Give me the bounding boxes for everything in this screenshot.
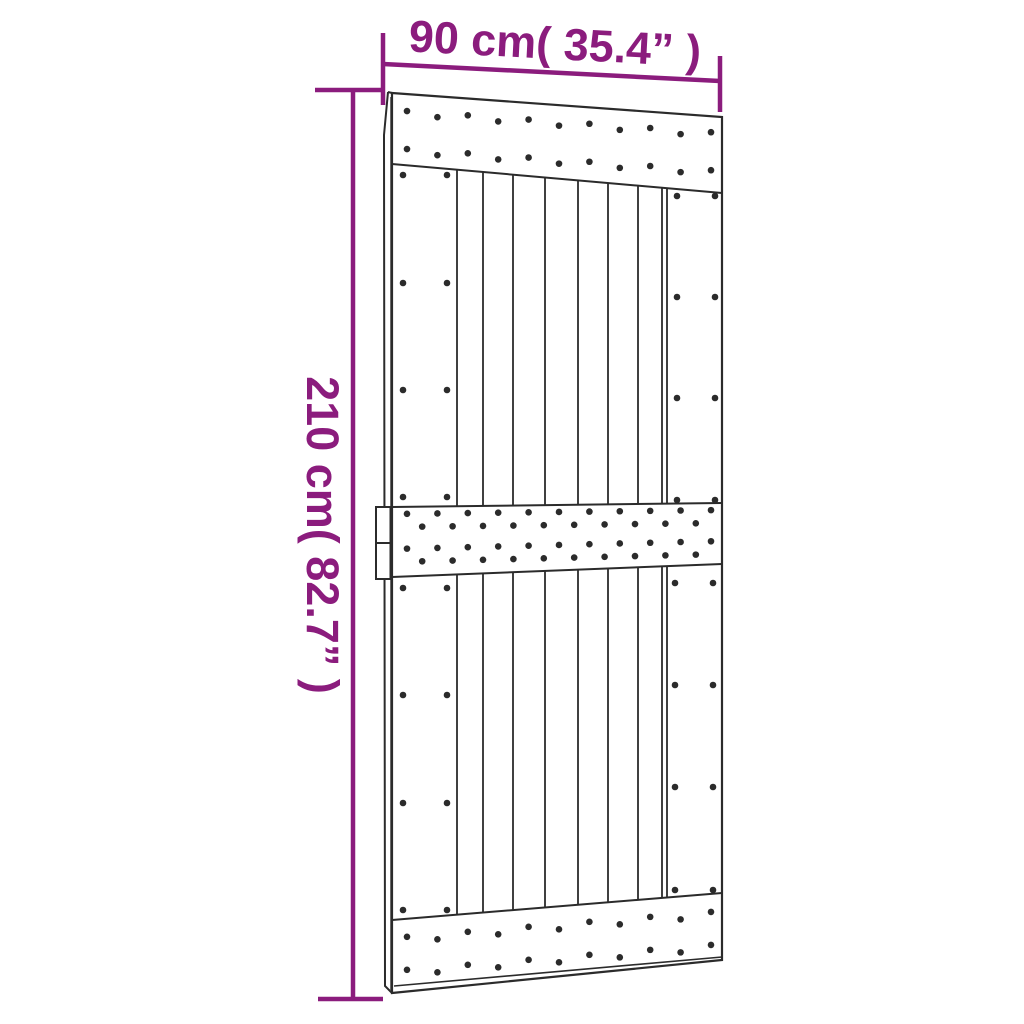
door-handle	[376, 507, 391, 579]
dimension-diagram: 90 cm( 35.4” ) 210 cm( 82.7” )	[0, 0, 1024, 1024]
door-drawing	[0, 0, 1024, 1024]
height-dimension-label: 210 cm( 82.7” )	[294, 365, 350, 705]
